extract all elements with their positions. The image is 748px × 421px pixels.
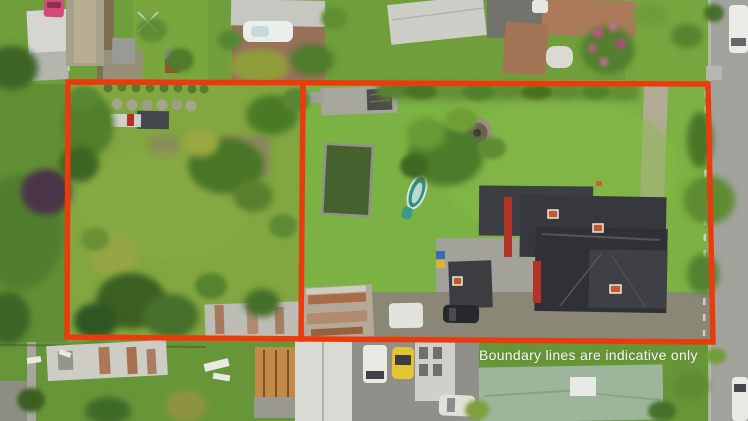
bush xyxy=(648,401,676,421)
small-shed xyxy=(112,38,136,65)
red-wall xyxy=(533,261,541,303)
bin-blue xyxy=(436,251,445,259)
parking-van-windshield xyxy=(366,371,384,379)
bush xyxy=(282,88,310,112)
car-on-road-bottom xyxy=(732,377,748,421)
flowers xyxy=(600,58,608,66)
white-car-glass xyxy=(447,398,455,412)
bush xyxy=(465,400,489,420)
yellow-tuft xyxy=(183,129,219,157)
flowers xyxy=(588,44,596,52)
stepping-stone xyxy=(186,101,197,112)
tree xyxy=(445,108,477,132)
tree xyxy=(704,4,724,22)
suv xyxy=(443,305,479,324)
chimney xyxy=(593,224,603,232)
bush xyxy=(673,372,709,400)
red-wall xyxy=(504,197,512,257)
container-door xyxy=(419,347,428,359)
flowers xyxy=(609,23,617,31)
hedge-bush xyxy=(581,85,611,99)
stepping-stone xyxy=(112,99,123,110)
pink-car-window xyxy=(47,2,61,8)
chimney xyxy=(453,277,462,285)
spa-inner xyxy=(251,26,269,37)
tree xyxy=(233,180,273,212)
tree-dark xyxy=(74,303,118,339)
water-tank xyxy=(546,46,573,68)
rust-patch xyxy=(98,347,110,375)
long-shed-stripe xyxy=(74,0,96,63)
boundary-disclaimer-text: Boundary lines are indicative only xyxy=(479,347,698,363)
stepping-stone xyxy=(172,100,183,111)
bush xyxy=(195,273,227,299)
sage-chimney xyxy=(570,377,596,396)
tree xyxy=(478,137,506,159)
gazebo-center xyxy=(473,129,481,137)
bush xyxy=(17,388,45,412)
container-door xyxy=(433,364,442,376)
bush xyxy=(166,48,194,72)
bush xyxy=(137,18,167,42)
hedge-bush xyxy=(610,85,636,99)
bush xyxy=(218,30,242,50)
aerial-photo: Boundary lines are indicative only xyxy=(0,0,748,421)
tree xyxy=(406,118,446,150)
suv-windshield xyxy=(449,308,456,321)
truck-cab xyxy=(127,114,134,126)
tree xyxy=(290,44,334,76)
chimney xyxy=(610,285,621,293)
rust-patch xyxy=(126,347,137,374)
chimney xyxy=(548,210,558,218)
bush xyxy=(244,289,280,317)
house-roof-se xyxy=(588,249,667,308)
stepping-stone xyxy=(142,100,153,111)
bush xyxy=(706,348,726,364)
container-door xyxy=(419,364,428,376)
vege-garden xyxy=(322,144,373,216)
white-caravan xyxy=(389,303,423,329)
brown-garage xyxy=(502,22,548,76)
tree xyxy=(633,3,669,27)
truck-tray xyxy=(137,111,169,130)
stepping-stone xyxy=(157,100,168,111)
truck-bed xyxy=(110,114,141,128)
shrub xyxy=(200,85,209,94)
yellow-car-glass xyxy=(395,355,411,365)
white-car-top xyxy=(532,0,548,13)
gray-shed xyxy=(254,397,297,418)
olive-tree xyxy=(165,390,207,421)
roof-vent xyxy=(596,181,602,186)
tree xyxy=(81,227,109,251)
stepping-stone xyxy=(127,100,138,111)
hedge-bush xyxy=(521,85,553,99)
utility-pad xyxy=(706,66,722,80)
bush xyxy=(269,214,297,238)
hedge-bush xyxy=(462,84,496,100)
bush xyxy=(68,86,100,110)
tree xyxy=(671,24,703,48)
rust-patch xyxy=(214,305,224,334)
tree xyxy=(400,154,428,178)
tree xyxy=(230,49,290,83)
flowers xyxy=(616,39,626,49)
flowers xyxy=(593,28,603,38)
container-door xyxy=(433,347,442,359)
bin-yellow xyxy=(436,260,445,268)
bush xyxy=(321,7,347,29)
shrub xyxy=(188,85,197,94)
tree xyxy=(143,294,199,338)
boundary-divider-line xyxy=(301,84,303,339)
rust-patch xyxy=(146,349,156,374)
car-on-road-glass xyxy=(734,384,746,392)
plum-tree xyxy=(21,169,71,215)
van-windshield xyxy=(731,38,746,46)
